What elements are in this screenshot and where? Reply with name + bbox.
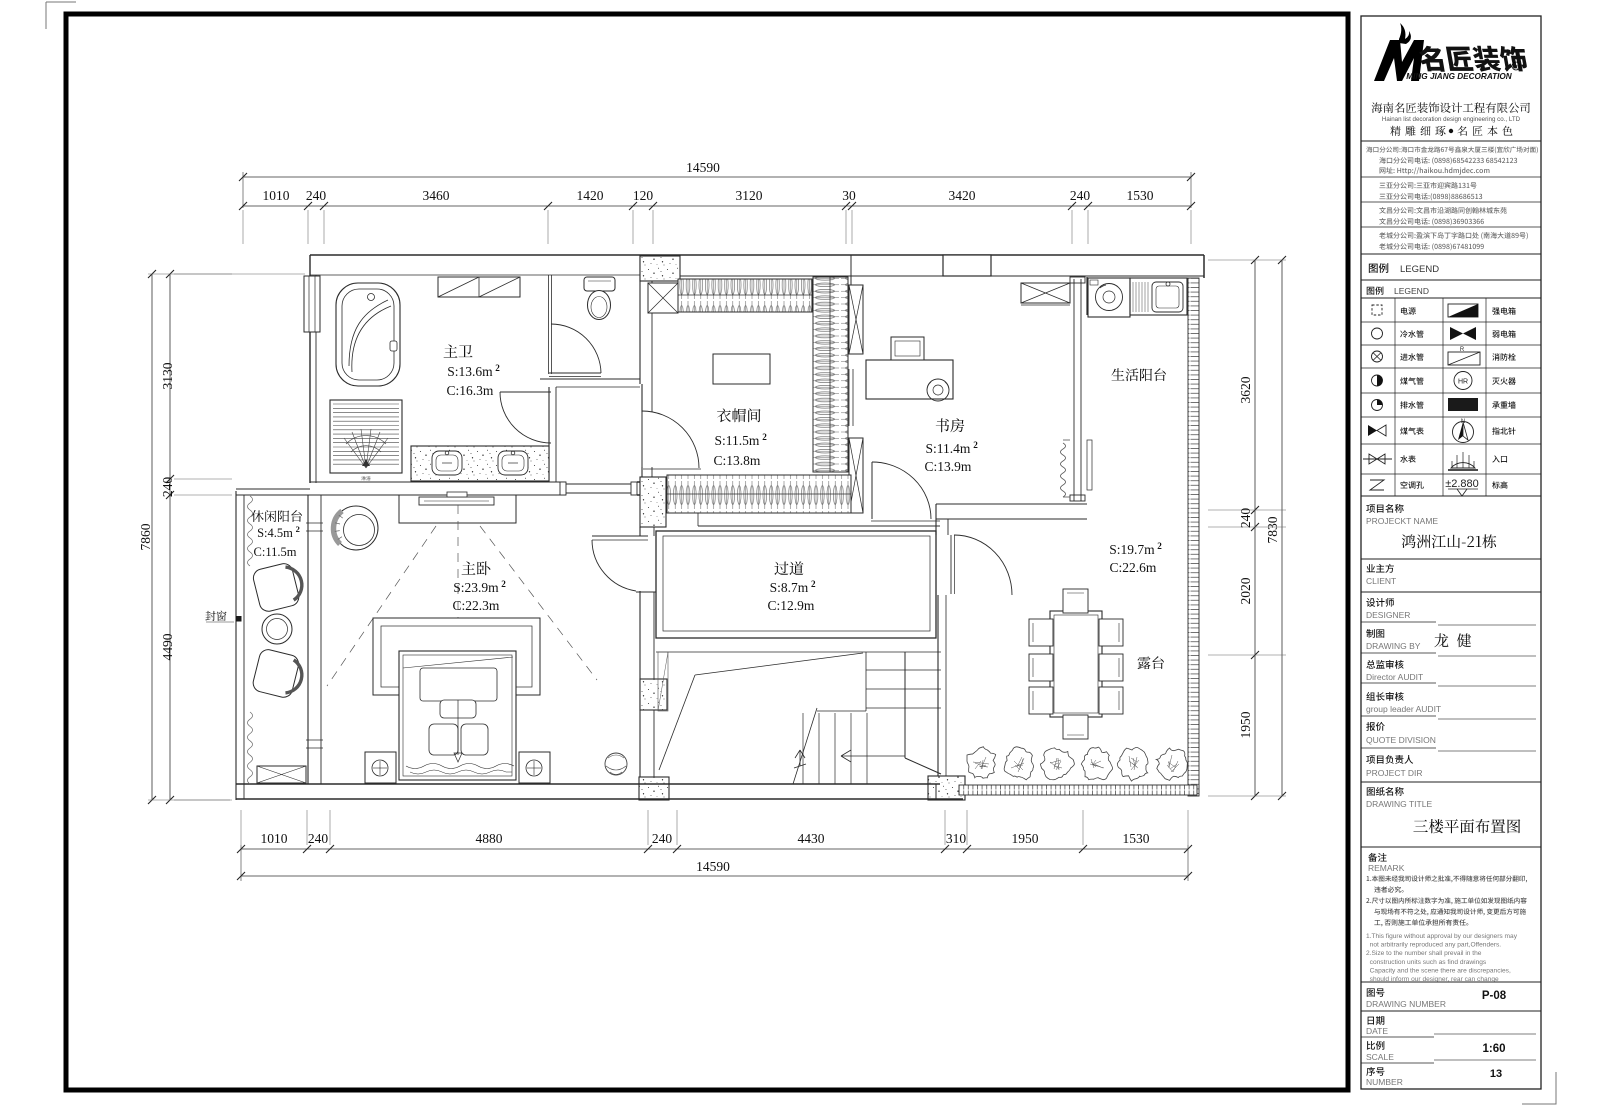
svg-text:N: N bbox=[1461, 419, 1465, 425]
svg-text:HR: HR bbox=[1458, 379, 1468, 386]
svg-text:C:13.8m: C:13.8m bbox=[714, 453, 761, 468]
svg-text:group leader AUDIT: group leader AUDIT bbox=[1366, 704, 1441, 714]
svg-text:240: 240 bbox=[1070, 188, 1091, 203]
svg-text:1010: 1010 bbox=[261, 831, 288, 846]
svg-text:C:22.3m: C:22.3m bbox=[453, 598, 500, 613]
svg-text:1010: 1010 bbox=[263, 188, 290, 203]
svg-text:1530: 1530 bbox=[1123, 831, 1150, 846]
svg-text:2020: 2020 bbox=[1238, 577, 1253, 604]
svg-text:not arbitrarily reproduced any: not arbitrarily reproduced any part,Offe… bbox=[1366, 942, 1501, 949]
svg-text:PROJECT DIR: PROJECT DIR bbox=[1366, 768, 1423, 778]
svg-text:S:8.7m: S:8.7m bbox=[770, 580, 809, 595]
svg-text:1420: 1420 bbox=[577, 188, 604, 203]
svg-text:S:19.7m: S:19.7m bbox=[1109, 542, 1155, 557]
svg-text:2: 2 bbox=[762, 432, 767, 442]
svg-text:3620: 3620 bbox=[1238, 376, 1253, 403]
svg-text:14590: 14590 bbox=[696, 859, 730, 874]
svg-text:C:13.9m: C:13.9m bbox=[925, 459, 972, 474]
svg-text:QUOTE DIVISION: QUOTE DIVISION bbox=[1366, 735, 1436, 745]
svg-text:MING JIANG DECORATION: MING JIANG DECORATION bbox=[1406, 72, 1512, 81]
svg-text:7860: 7860 bbox=[138, 523, 153, 550]
svg-text:1950: 1950 bbox=[1238, 711, 1253, 738]
svg-text:4880: 4880 bbox=[476, 831, 503, 846]
svg-text:±2.880: ±2.880 bbox=[1445, 478, 1479, 490]
svg-text:240: 240 bbox=[306, 188, 327, 203]
svg-text:240: 240 bbox=[652, 831, 673, 846]
svg-text:PROJECKT NAME: PROJECKT NAME bbox=[1366, 516, 1438, 526]
svg-text:1530: 1530 bbox=[1127, 188, 1154, 203]
svg-text:4430: 4430 bbox=[798, 831, 825, 846]
svg-text:Capacity and the scene there a: Capacity and the scene there are discrep… bbox=[1366, 967, 1511, 974]
svg-text:DRAWING TITLE: DRAWING TITLE bbox=[1366, 799, 1432, 809]
svg-text:2: 2 bbox=[973, 440, 978, 450]
svg-text:CLIENT: CLIENT bbox=[1366, 576, 1396, 586]
svg-text:S:11.4m: S:11.4m bbox=[926, 441, 971, 456]
svg-text:3120: 3120 bbox=[736, 188, 763, 203]
svg-text:240: 240 bbox=[1238, 508, 1253, 529]
svg-text:S:23.9m: S:23.9m bbox=[453, 580, 499, 595]
svg-text:1950: 1950 bbox=[1012, 831, 1039, 846]
svg-text:C:11.5m: C:11.5m bbox=[254, 545, 297, 559]
svg-text:2: 2 bbox=[296, 524, 300, 534]
svg-text:DATE: DATE bbox=[1366, 1026, 1388, 1036]
svg-text:3460: 3460 bbox=[423, 188, 450, 203]
svg-text:NUMBER: NUMBER bbox=[1366, 1077, 1403, 1087]
svg-text:1.This figure without approval: 1.This figure without approval by our de… bbox=[1366, 933, 1518, 940]
svg-text:DRAWING NUMBER: DRAWING NUMBER bbox=[1366, 999, 1446, 1009]
svg-text:2: 2 bbox=[1157, 541, 1162, 551]
svg-text:14590: 14590 bbox=[686, 160, 720, 175]
svg-text:R: R bbox=[1460, 347, 1465, 353]
svg-text:S:13.6m: S:13.6m bbox=[447, 364, 493, 379]
svg-text:240: 240 bbox=[308, 831, 329, 846]
svg-text:240: 240 bbox=[160, 477, 175, 498]
svg-text:30: 30 bbox=[842, 188, 856, 203]
svg-text:7830: 7830 bbox=[1265, 516, 1280, 543]
svg-text:13: 13 bbox=[1490, 1068, 1502, 1080]
svg-text:construction units such as fin: construction units such as find drawings bbox=[1366, 959, 1487, 966]
svg-text:S:4.5m: S:4.5m bbox=[257, 526, 293, 540]
svg-text:C:22.6m: C:22.6m bbox=[1110, 560, 1157, 575]
svg-text:3420: 3420 bbox=[949, 188, 976, 203]
svg-text:LEGEND: LEGEND bbox=[1400, 264, 1439, 275]
svg-text:Director AUDIT: Director AUDIT bbox=[1366, 672, 1423, 682]
svg-text:P-08: P-08 bbox=[1482, 990, 1507, 1002]
svg-text:Hainan list decoration design: Hainan list decoration design engineerin… bbox=[1382, 116, 1521, 123]
svg-text:DRAWING BY: DRAWING BY bbox=[1366, 641, 1421, 651]
svg-text:4490: 4490 bbox=[160, 633, 175, 660]
svg-text:2.Size to the number shall pre: 2.Size to the number shall prevail in th… bbox=[1366, 950, 1482, 957]
svg-text:2: 2 bbox=[495, 363, 500, 373]
svg-text:C:12.9m: C:12.9m bbox=[768, 598, 815, 613]
svg-text:310: 310 bbox=[946, 831, 967, 846]
svg-text:2: 2 bbox=[501, 579, 506, 589]
svg-text:C:16.3m: C:16.3m bbox=[447, 383, 494, 398]
svg-text:SCALE: SCALE bbox=[1366, 1052, 1394, 1062]
svg-text:3130: 3130 bbox=[160, 362, 175, 389]
svg-text:DESIGNER: DESIGNER bbox=[1366, 610, 1410, 620]
svg-text:120: 120 bbox=[633, 188, 654, 203]
svg-text:1:60: 1:60 bbox=[1482, 1043, 1505, 1055]
svg-text:S:11.5m: S:11.5m bbox=[715, 433, 760, 448]
svg-text:REMARK: REMARK bbox=[1368, 863, 1405, 873]
svg-text:2: 2 bbox=[811, 579, 816, 589]
svg-text:LEGEND: LEGEND bbox=[1394, 286, 1429, 296]
